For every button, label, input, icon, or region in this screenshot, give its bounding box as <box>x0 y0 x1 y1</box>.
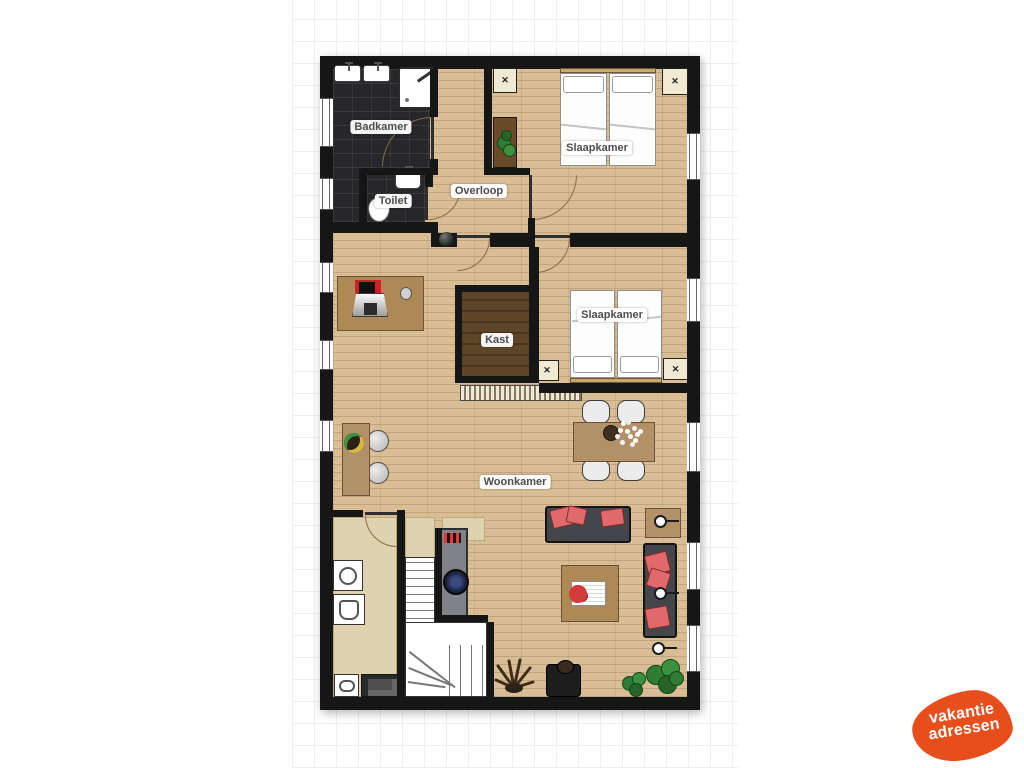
chair-icon <box>367 430 389 452</box>
window <box>687 133 700 180</box>
sink-icon <box>334 65 361 82</box>
staircase-winder <box>405 622 487 697</box>
wall <box>359 175 367 222</box>
pillow-icon <box>612 76 653 93</box>
plant-icon <box>645 657 684 695</box>
tap-icon <box>377 62 379 71</box>
bedroom1-door <box>529 175 532 220</box>
wall <box>539 383 687 393</box>
vent-icon <box>339 680 355 692</box>
dining-chair-icon <box>582 400 610 424</box>
window <box>687 422 700 472</box>
window <box>320 262 333 293</box>
room-label-slaapkamer-1: Slaapkamer <box>562 141 632 155</box>
basket-icon <box>339 600 359 620</box>
room-label-woonkamer: Woonkamer <box>480 475 551 489</box>
wall <box>333 510 363 517</box>
window <box>320 340 333 370</box>
window <box>320 420 333 452</box>
cushion-icon <box>644 605 670 630</box>
closet-wall <box>455 292 462 383</box>
wall <box>529 247 539 383</box>
laundry-basket-icon <box>333 594 365 625</box>
shower-icon <box>398 67 434 109</box>
drum-icon <box>339 567 357 585</box>
nightstand-lamp-icon: ✕ <box>662 68 688 95</box>
tap-icon <box>348 62 350 71</box>
room-label-slaapkamer-2: Slaapkamer <box>577 308 647 322</box>
wall <box>333 222 438 233</box>
desk-accessory-icon <box>400 287 412 300</box>
desk-chair-seat <box>364 303 377 315</box>
stove-lid-icon <box>557 660 574 674</box>
dining-chair-icon <box>617 400 645 424</box>
wall-lamp-icon <box>654 587 667 600</box>
room-label-badkamer: Badkamer <box>350 120 411 134</box>
digital-display-icon <box>444 533 461 543</box>
plant-icon <box>620 670 648 696</box>
dried-plant-icon <box>492 656 536 694</box>
wall <box>430 69 438 117</box>
chair-icon <box>367 462 389 484</box>
window <box>320 178 333 210</box>
dining-chair-icon <box>617 459 645 481</box>
small-appliance-icon <box>334 674 359 697</box>
cushion-icon <box>565 505 587 526</box>
pillow-icon <box>573 356 612 373</box>
flower-decoration-icon <box>569 585 587 603</box>
heater-unit <box>440 528 468 618</box>
sink-icon <box>363 65 390 82</box>
window <box>687 625 700 672</box>
stair-landing-top <box>405 517 435 559</box>
cushion-icon <box>600 507 625 527</box>
wall <box>397 510 405 517</box>
table-lamp-icon <box>654 515 667 528</box>
wall-lamp-icon <box>652 642 665 655</box>
gauge-icon <box>443 569 469 595</box>
planter-box <box>493 117 517 168</box>
wall <box>435 528 442 622</box>
window <box>320 98 333 147</box>
wall <box>397 517 405 697</box>
wall <box>425 175 433 187</box>
leaf <box>669 671 684 686</box>
wall <box>435 615 488 622</box>
bathroom-floor-strip <box>333 168 359 222</box>
utility-door <box>365 512 397 515</box>
winder-treads <box>439 645 486 696</box>
wall <box>484 69 492 175</box>
desk-equipment-icon <box>355 280 381 293</box>
toilet-door <box>425 187 428 220</box>
leaf <box>629 683 643 697</box>
pillow-icon <box>620 356 659 373</box>
wood-stove-icon <box>546 664 581 697</box>
window <box>687 542 700 590</box>
flower-bouquet-icon <box>618 428 623 433</box>
plant-icon <box>501 130 512 141</box>
wall <box>430 159 438 168</box>
staircase-flight <box>405 557 435 627</box>
shower-drain-icon <box>405 98 409 102</box>
wall <box>528 218 535 233</box>
nightstand-lamp-icon: ✕ <box>493 68 517 93</box>
plant-icon <box>503 144 516 157</box>
wall <box>484 168 530 175</box>
fruit-bowl-icon <box>344 433 364 453</box>
landing-door <box>457 235 490 238</box>
window <box>687 278 700 322</box>
vakantieadressen-logo: vakantie adressen <box>908 690 1018 766</box>
wall <box>359 168 438 175</box>
room-label-kast: Kast <box>481 333 513 347</box>
floorplan: ✕ ✕ ✕ ✕ <box>320 56 700 710</box>
room-label-toilet: Toilet <box>375 194 412 208</box>
wall <box>570 233 687 247</box>
room-label-overloop: Overloop <box>451 184 507 198</box>
closet-wall <box>455 376 539 383</box>
closet-wall <box>455 285 539 292</box>
nightstand-lamp-icon: ✕ <box>663 358 688 380</box>
wall <box>487 622 494 697</box>
pendant-lamp-icon <box>439 232 454 247</box>
bedroom2-door <box>535 235 570 238</box>
pillow-icon <box>563 76 604 93</box>
dining-chair-icon <box>582 459 610 481</box>
washing-machine-icon <box>333 560 363 591</box>
vase-icon <box>603 425 619 441</box>
wall <box>490 233 535 247</box>
